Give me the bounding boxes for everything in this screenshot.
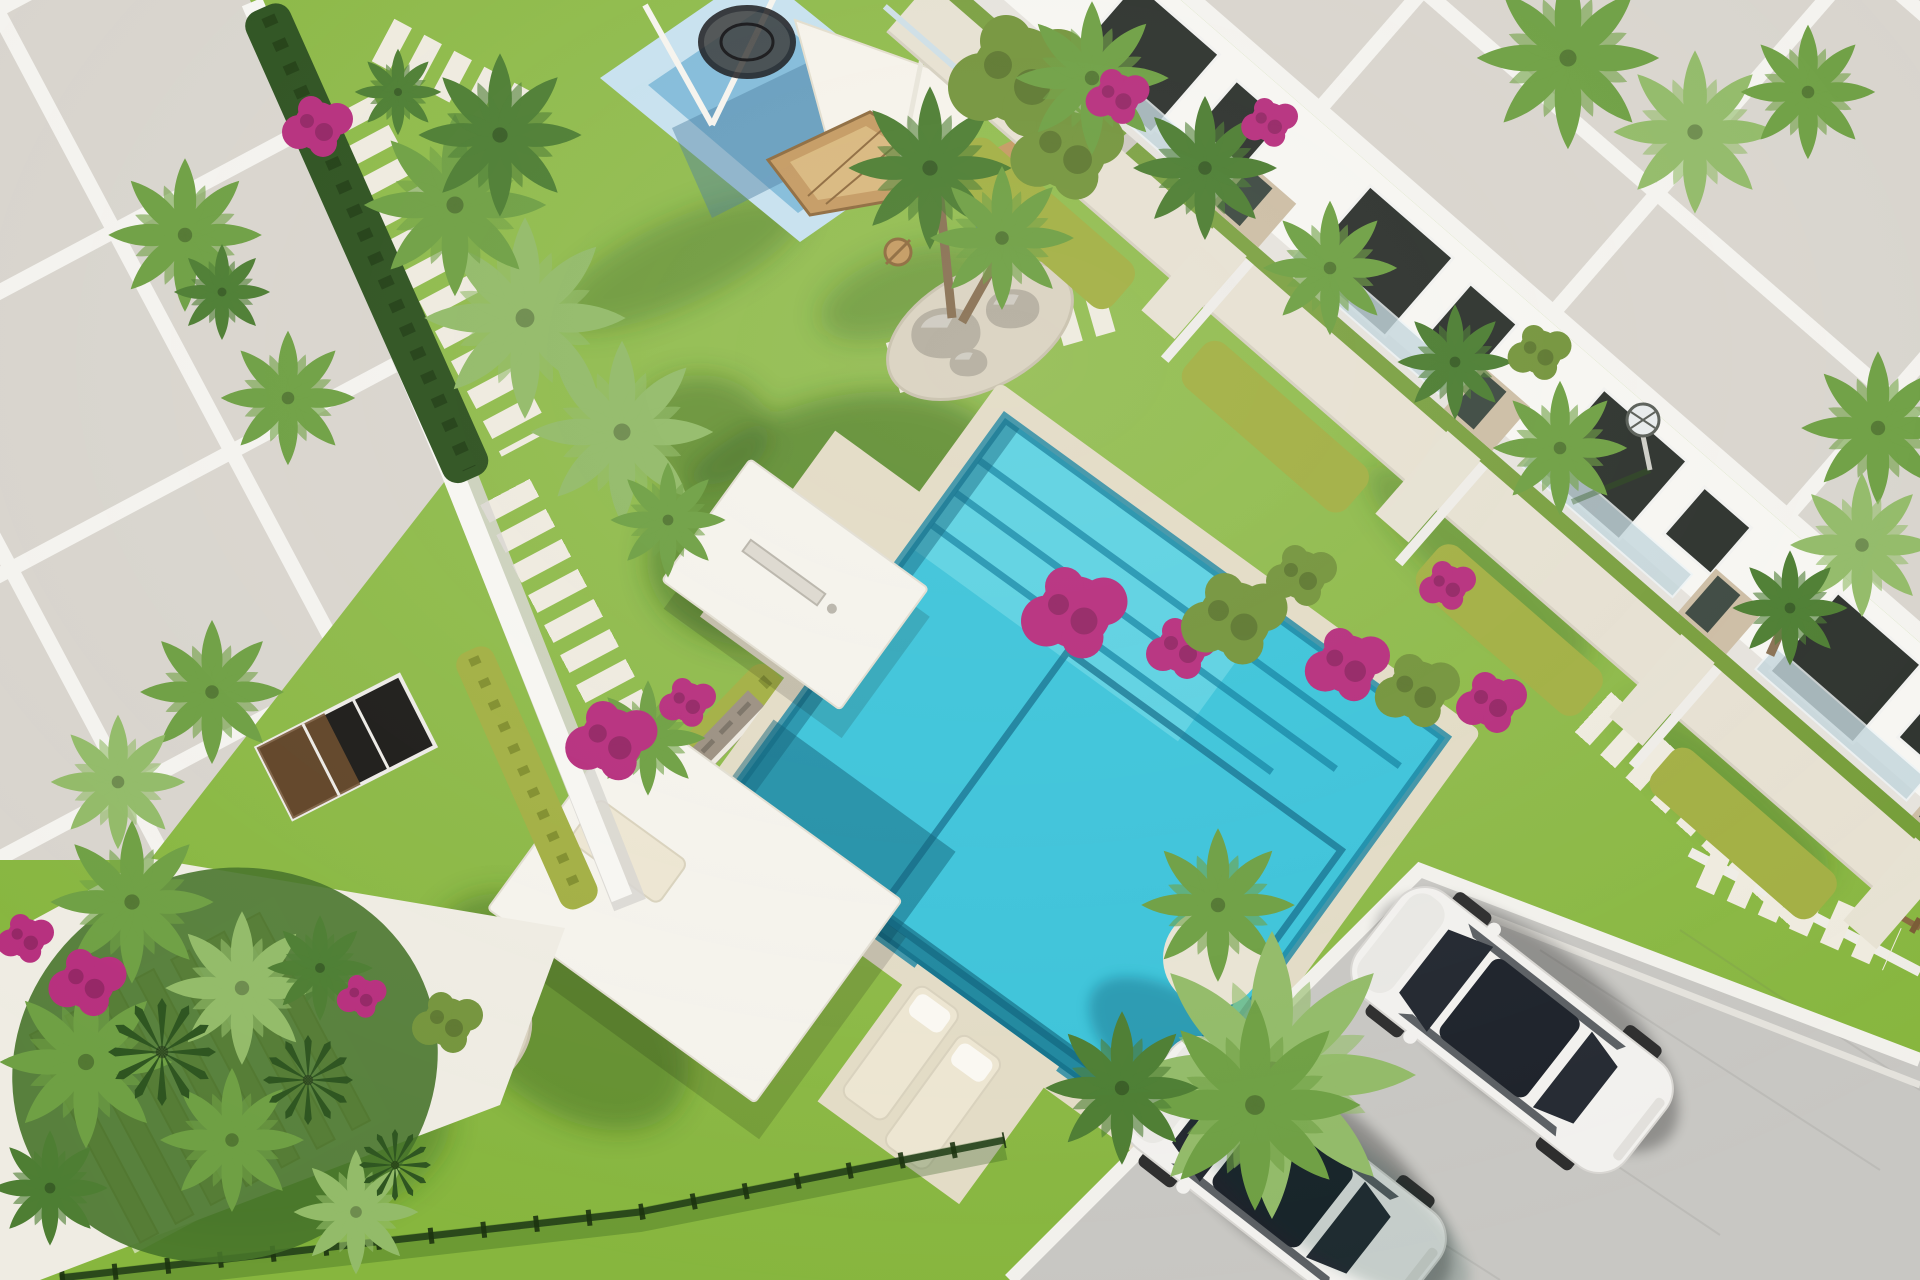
scene-canvas: [0, 0, 1920, 1280]
aerial-render: [0, 0, 1920, 1280]
light-glaze: [0, 0, 1920, 1280]
